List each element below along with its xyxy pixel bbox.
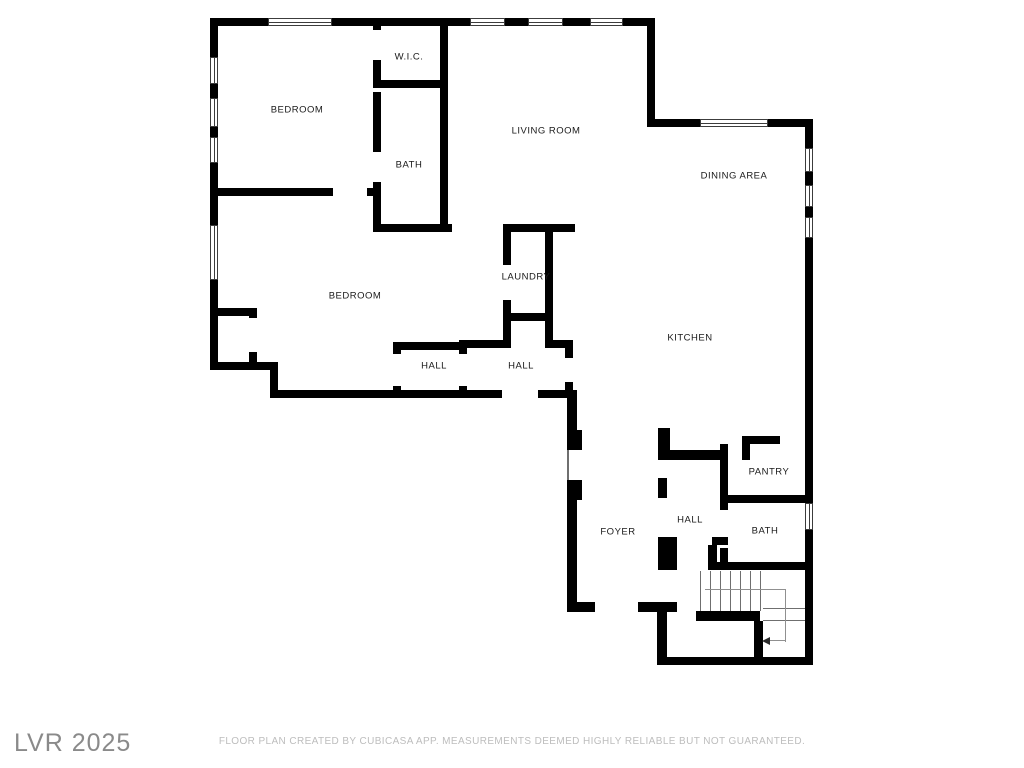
window-glyph <box>805 217 813 238</box>
wall <box>210 84 218 98</box>
wall <box>805 207 813 217</box>
wall <box>393 342 401 354</box>
wall <box>210 280 218 370</box>
window-glyph <box>210 137 218 163</box>
window-glyph <box>210 98 218 127</box>
window-pane-line <box>214 99 215 126</box>
wall <box>657 657 813 665</box>
wall <box>270 362 278 398</box>
floorplan-canvas: W.I.C.BEDROOMBATHLIVING ROOMDINING AREAB… <box>0 0 1024 768</box>
wall <box>459 386 467 398</box>
wall <box>373 80 448 88</box>
wall <box>332 18 470 26</box>
room-label-laundry: LAUNDRY <box>502 272 551 283</box>
wall <box>210 188 333 196</box>
wall <box>210 127 218 137</box>
stair-tread-line <box>763 608 805 609</box>
wall <box>805 530 813 665</box>
wall <box>393 386 401 398</box>
wall <box>708 562 813 570</box>
disclaimer-text: FLOOR PLAN CREATED BY CUBICASA APP. MEAS… <box>0 736 1024 747</box>
wall <box>658 537 677 570</box>
wall <box>647 119 700 127</box>
wall <box>567 480 582 500</box>
stair-guide-line <box>705 589 786 590</box>
room-label-living-room: LIVING ROOM <box>512 126 581 137</box>
window-glyph <box>268 18 332 26</box>
wall <box>373 224 452 232</box>
wall <box>638 602 677 612</box>
wall <box>658 478 667 498</box>
window-glyph <box>528 18 563 26</box>
wall <box>565 382 573 398</box>
stair-tread-line <box>730 571 731 611</box>
room-label-dining-area: DINING AREA <box>701 171 768 182</box>
window-pane-line <box>809 504 810 529</box>
wall <box>503 232 511 265</box>
stair-tread-line <box>710 571 711 611</box>
window-glyph <box>210 225 218 280</box>
room-label-foyer: FOYER <box>600 527 635 538</box>
window-pane-line <box>809 218 810 237</box>
wall <box>505 18 528 26</box>
window-pane-line <box>269 22 331 23</box>
window-glyph <box>470 18 505 26</box>
window-glyph <box>700 119 768 127</box>
stair-tread-line <box>720 571 721 611</box>
stair-tread-line <box>567 450 569 480</box>
window-glyph <box>805 148 813 172</box>
room-label-kitchen: KITCHEN <box>667 333 712 344</box>
wall <box>503 224 575 232</box>
stair-direction-arrow <box>762 637 770 645</box>
room-label-bath-upper: BATH <box>396 160 423 171</box>
stair-guide-line <box>770 640 786 641</box>
wall <box>647 18 655 127</box>
window-pane-line <box>591 22 622 23</box>
window-glyph <box>805 185 813 207</box>
wall <box>742 436 780 444</box>
wall <box>805 119 813 148</box>
window-pane-line <box>809 186 810 206</box>
window-pane-line <box>529 22 562 23</box>
room-label-hall-3: HALL <box>677 515 703 526</box>
wall <box>805 238 813 503</box>
room-label-bedroom-1: BEDROOM <box>271 105 324 116</box>
wall <box>393 342 463 350</box>
window-pane-line <box>809 149 810 171</box>
wall <box>563 18 590 26</box>
wall <box>567 430 582 450</box>
stair-tread-line <box>700 571 701 611</box>
room-label-bedroom-2: BEDROOM <box>329 291 382 302</box>
window-pane-line <box>214 58 215 83</box>
wall <box>567 602 595 612</box>
stair-tread-line <box>763 620 805 621</box>
wall <box>696 611 760 621</box>
wall <box>210 18 268 26</box>
wall <box>373 18 381 30</box>
wall <box>503 300 511 348</box>
window-glyph <box>590 18 623 26</box>
wall <box>545 232 553 348</box>
window-pane-line <box>701 123 767 124</box>
window-pane-line <box>214 226 215 279</box>
window-glyph <box>805 503 813 530</box>
stair-guide-line <box>785 589 786 642</box>
stair-tread-line <box>740 571 741 611</box>
wall <box>565 340 573 358</box>
wall <box>511 313 545 321</box>
wall <box>665 450 728 460</box>
stair-tread-line <box>760 571 761 611</box>
wall <box>367 188 381 196</box>
wall <box>373 92 381 152</box>
stair-tread-line <box>750 571 751 611</box>
wall <box>720 444 728 510</box>
room-label-bath-lower: BATH <box>752 526 779 537</box>
wall <box>210 18 218 57</box>
wall <box>278 390 502 398</box>
floorplan-drawing: W.I.C.BEDROOMBATHLIVING ROOMDINING AREAB… <box>0 0 1024 768</box>
wall <box>720 495 813 503</box>
wall <box>805 172 813 185</box>
wall <box>712 537 728 545</box>
window-pane-line <box>471 22 504 23</box>
window-pane-line <box>214 138 215 162</box>
room-label-hall-1: HALL <box>421 361 447 372</box>
room-label-pantry: PANTRY <box>749 467 790 478</box>
wall <box>440 18 448 232</box>
window-glyph <box>210 57 218 84</box>
room-label-hall-2: HALL <box>508 361 534 372</box>
room-label-wic: W.I.C. <box>395 52 424 63</box>
wall <box>210 362 278 370</box>
wall <box>249 308 257 318</box>
